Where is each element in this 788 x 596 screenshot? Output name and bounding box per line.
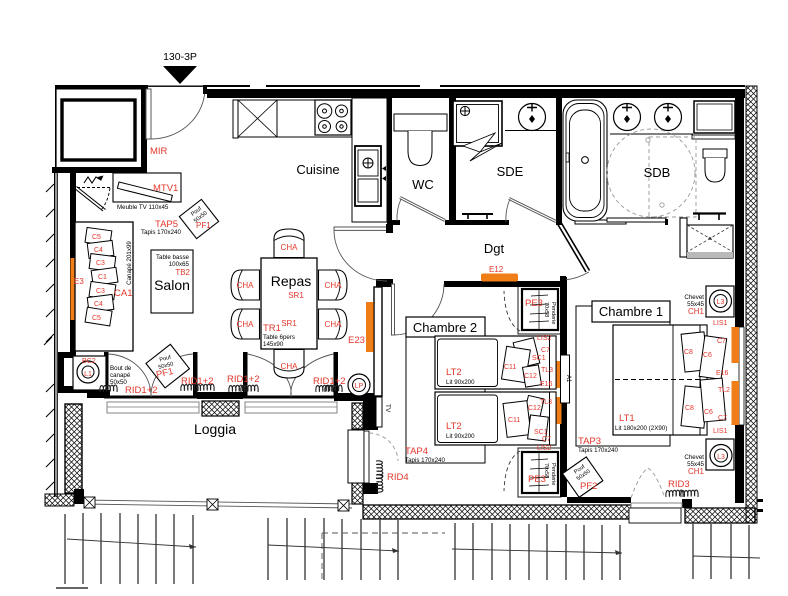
- svg-text:CHA: CHA: [281, 362, 299, 371]
- svg-text:LT1: LT1: [619, 413, 635, 424]
- svg-text:LIS1: LIS1: [713, 320, 728, 327]
- svg-text:L1: L1: [84, 371, 92, 378]
- svg-text:Canapé 201x99: Canapé 201x99: [126, 241, 133, 285]
- svg-text:TAP4: TAP4: [405, 446, 428, 457]
- svg-text:C8: C8: [685, 405, 694, 412]
- svg-text:L3: L3: [717, 299, 725, 306]
- svg-text:C7: C7: [542, 436, 551, 443]
- svg-text:TV: TV: [384, 404, 391, 413]
- svg-text:SC1: SC1: [532, 355, 546, 362]
- svg-text:LIS2: LIS2: [537, 445, 552, 452]
- svg-text:C5: C5: [92, 315, 101, 322]
- svg-text:E3: E3: [74, 277, 84, 286]
- svg-text:70x58: 70x58: [543, 302, 549, 317]
- svg-text:WC: WC: [412, 177, 434, 192]
- svg-text:L3: L3: [717, 454, 725, 461]
- svg-text:C4: C4: [94, 247, 103, 254]
- svg-text:C12: C12: [528, 405, 541, 412]
- svg-text:CA1: CA1: [114, 288, 132, 299]
- svg-text:SDB: SDB: [644, 165, 671, 180]
- svg-text:C8: C8: [684, 349, 693, 356]
- svg-text:C1: C1: [98, 274, 107, 281]
- svg-text:C3: C3: [96, 260, 105, 267]
- svg-text:Tapis 170x240: Tapis 170x240: [141, 229, 181, 236]
- svg-text:Penderie: Penderie: [550, 302, 556, 324]
- svg-text:BC2: BC2: [82, 358, 96, 365]
- svg-text:Chevet: Chevet: [684, 294, 704, 301]
- svg-text:Repas: Repas: [271, 273, 311, 289]
- svg-text:Lit 180x200 (2X90): Lit 180x200 (2X90): [615, 425, 667, 432]
- svg-text:Dgt: Dgt: [484, 241, 505, 256]
- svg-text:MTV1: MTV1: [153, 183, 178, 194]
- svg-text:Cuisine: Cuisine: [296, 162, 339, 177]
- svg-text:Table basse: Table basse: [156, 254, 190, 261]
- svg-text:CH1: CH1: [688, 467, 705, 476]
- svg-text:RID1+2: RID1+2: [125, 385, 157, 396]
- svg-text:C4: C4: [94, 301, 103, 308]
- svg-text:TR1: TR1: [263, 323, 281, 334]
- svg-text:Tapis 170x240: Tapis 170x240: [578, 447, 618, 454]
- svg-text:C11: C11: [504, 364, 516, 371]
- svg-text:145x90: 145x90: [263, 341, 284, 348]
- svg-text:PF1: PF1: [196, 221, 211, 230]
- svg-text:TL3: TL3: [540, 399, 552, 406]
- svg-text:Loggia: Loggia: [194, 421, 236, 437]
- svg-text:C11: C11: [508, 417, 520, 424]
- svg-text:100x65: 100x65: [169, 261, 190, 268]
- svg-text:C6: C6: [704, 409, 713, 416]
- svg-text:Chambre 1: Chambre 1: [599, 304, 663, 319]
- svg-text:E23: E23: [348, 335, 365, 346]
- svg-text:CHA: CHA: [281, 243, 299, 252]
- svg-text:SR1: SR1: [288, 291, 304, 300]
- svg-text:70x58: 70x58: [543, 463, 549, 478]
- svg-text:A1: A1: [565, 375, 571, 383]
- svg-text:Chevet: Chevet: [684, 454, 704, 461]
- svg-text:C3: C3: [96, 288, 105, 295]
- svg-text:Lit 90x200: Lit 90x200: [446, 379, 475, 386]
- svg-text:Meuble TV 110x45: Meuble TV 110x45: [117, 204, 169, 211]
- svg-text:MIR: MIR: [150, 146, 168, 157]
- svg-text:LT2: LT2: [446, 421, 462, 432]
- svg-text:C7: C7: [717, 338, 726, 345]
- svg-text:RID1+2: RID1+2: [227, 374, 259, 385]
- svg-text:Penderie: Penderie: [550, 463, 556, 485]
- svg-text:SDE: SDE: [497, 164, 524, 179]
- svg-text:TL3: TL3: [541, 367, 553, 374]
- svg-text:RID1+2: RID1+2: [313, 376, 345, 387]
- svg-text:130-3P: 130-3P: [163, 51, 197, 63]
- svg-text:CHA: CHA: [325, 281, 343, 290]
- svg-text:Chambre 2: Chambre 2: [413, 320, 477, 335]
- svg-text:Lit 90x200: Lit 90x200: [446, 433, 475, 440]
- svg-text:C6: C6: [703, 352, 712, 359]
- svg-text:CHA: CHA: [325, 320, 343, 329]
- svg-text:E16: E16: [540, 381, 553, 388]
- svg-text:RID1+2: RID1+2: [181, 376, 213, 387]
- svg-text:canapé: canapé: [110, 372, 131, 379]
- svg-text:LIS1: LIS1: [713, 428, 728, 435]
- svg-text:PF2: PF2: [580, 481, 597, 492]
- svg-text:CHA: CHA: [237, 320, 255, 329]
- svg-text:TB2: TB2: [175, 268, 190, 277]
- svg-text:CH1: CH1: [688, 307, 705, 316]
- svg-text:SC1: SC1: [534, 429, 548, 436]
- svg-text:E16: E16: [716, 370, 729, 377]
- svg-text:SR1: SR1: [281, 319, 297, 328]
- svg-text:LP: LP: [355, 383, 364, 390]
- svg-text:C7: C7: [541, 347, 550, 354]
- svg-text:Salon: Salon: [154, 277, 190, 293]
- svg-text:Bout de: Bout de: [110, 365, 132, 372]
- svg-text:C12: C12: [524, 373, 537, 380]
- svg-text:LT2: LT2: [446, 367, 462, 378]
- svg-text:C7: C7: [718, 415, 727, 422]
- svg-text:RID4: RID4: [387, 472, 409, 483]
- svg-text:PE3: PE3: [525, 298, 543, 309]
- svg-text:RID3: RID3: [668, 479, 690, 490]
- svg-text:E12: E12: [489, 265, 504, 274]
- svg-text:TL2: TL2: [718, 387, 730, 394]
- svg-text:CHA: CHA: [237, 281, 255, 290]
- svg-text:TAP3: TAP3: [578, 436, 601, 447]
- svg-text:C5: C5: [92, 234, 101, 241]
- svg-text:LIS2: LIS2: [537, 335, 552, 342]
- svg-text:Tapis 170x240: Tapis 170x240: [405, 457, 445, 464]
- svg-text:Table 6pers: Table 6pers: [263, 334, 295, 341]
